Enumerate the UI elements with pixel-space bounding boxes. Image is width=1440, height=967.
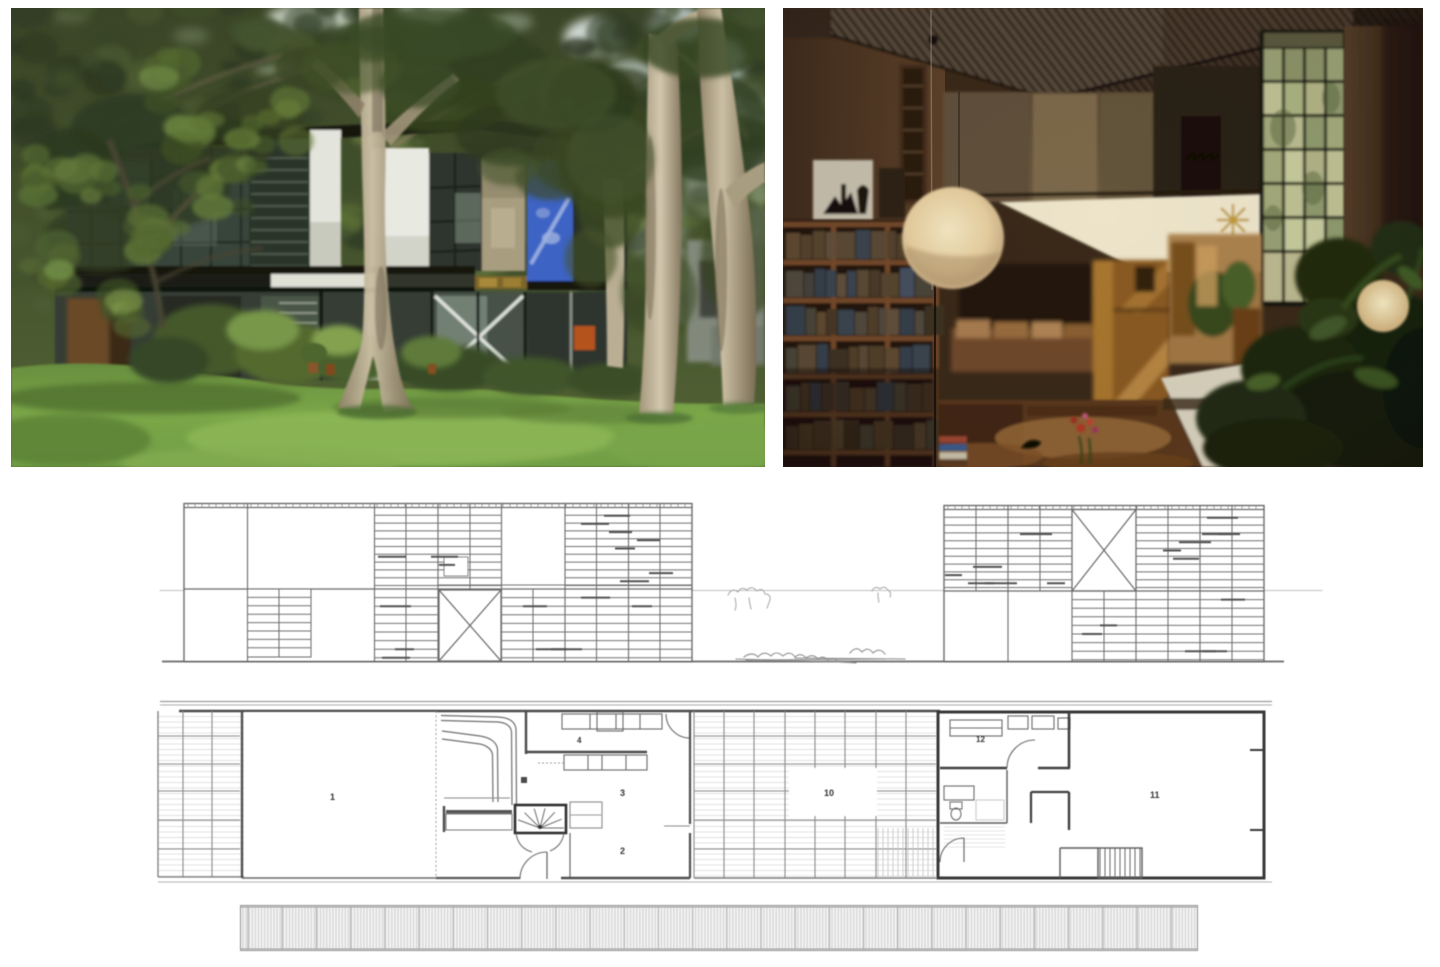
svg-text:12: 12 — [976, 735, 985, 744]
svg-text:2: 2 — [620, 846, 625, 856]
svg-text:10: 10 — [824, 788, 834, 798]
svg-text:1: 1 — [330, 792, 335, 802]
svg-text:4: 4 — [577, 736, 582, 745]
svg-text:3: 3 — [620, 788, 625, 798]
svg-text:11: 11 — [1150, 790, 1160, 800]
